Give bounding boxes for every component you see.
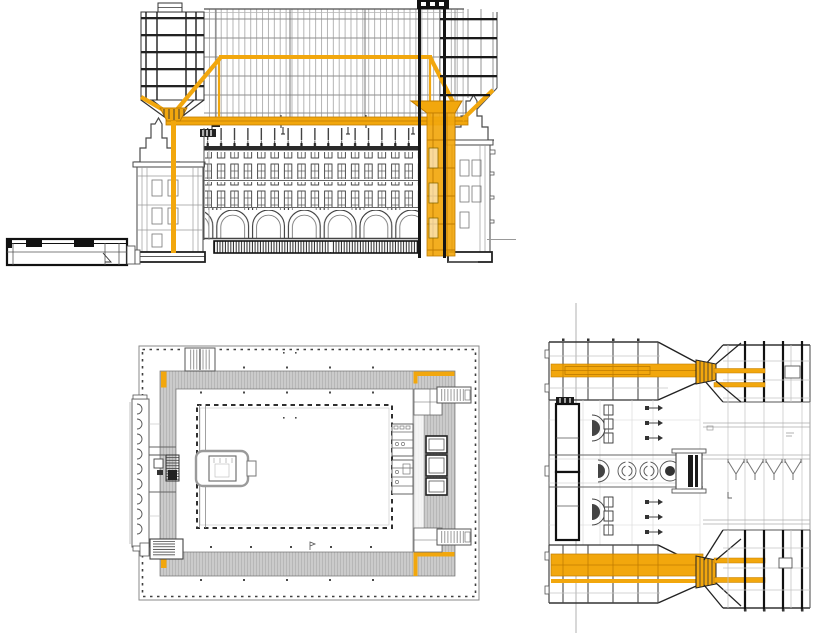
east-rooms [392,424,413,494]
small-flag-mark [310,542,315,550]
historic-main-facade [200,115,420,253]
stair-bottom-right [437,529,471,545]
roof-chimney-glyphs-lower [604,497,663,535]
section-drawing [7,0,516,265]
basement-annex [7,239,140,265]
floor-plan-drawing [130,346,479,600]
roof-bottom-right-block [704,530,810,612]
roof-plan-drawing [545,303,810,633]
hanger-chevrons [728,459,801,480]
roof-chimney-glyphs-upper [604,405,663,443]
drawing-sheet [0,0,818,633]
roof-historic-middle [545,384,706,558]
roof-middle-right-field [703,402,810,530]
historic-left-tower [133,118,205,262]
architectural-drawings-canvas [0,0,818,633]
stair-top-left [185,348,215,371]
stair-top-right [437,387,471,403]
